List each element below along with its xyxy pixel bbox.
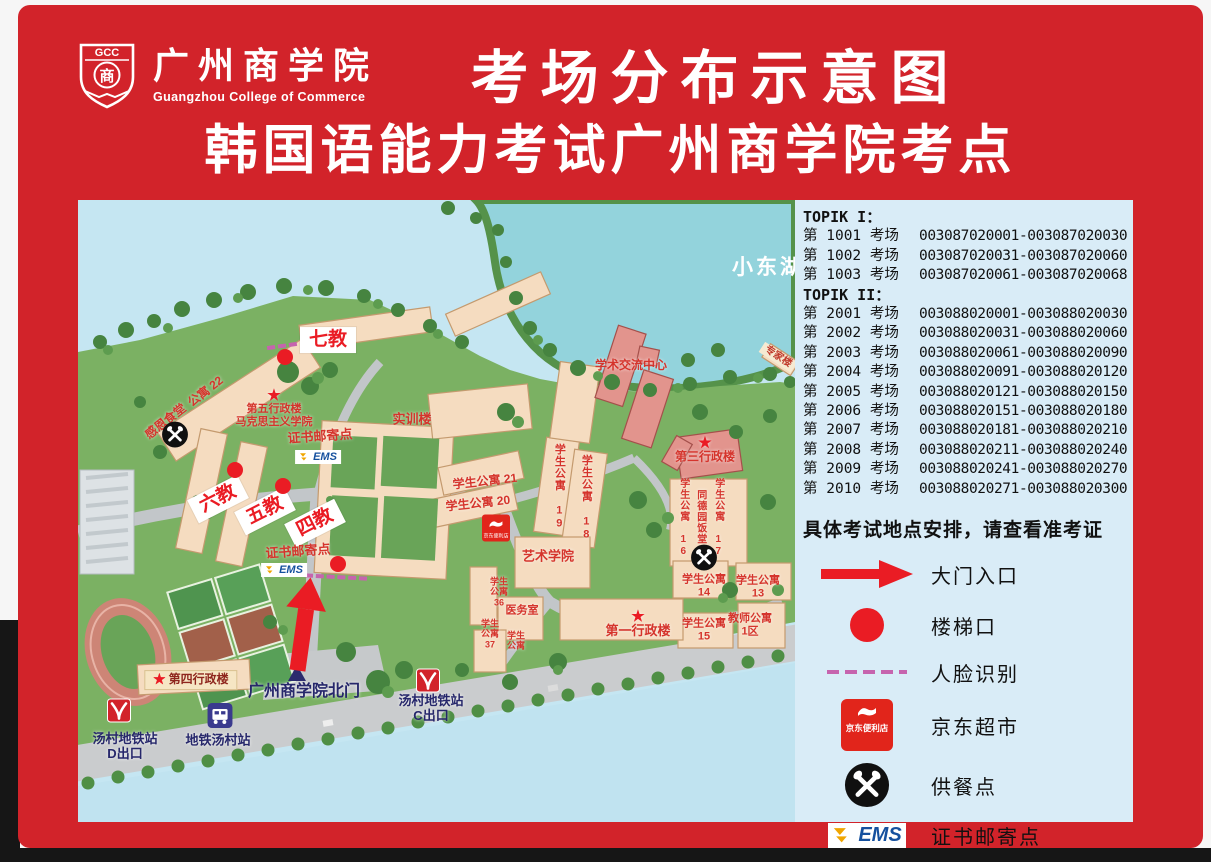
photo-background-edge	[0, 620, 20, 862]
map-label-gongyu-22: 公寓 22	[186, 374, 227, 410]
ticket-range: 003088020211-003088020240	[919, 441, 1127, 460]
legend-label: 供餐点	[931, 771, 997, 800]
ticket-range: 003088020121-003088020150	[919, 383, 1127, 402]
map-label-ditie-tangcunzhan: 地铁汤村站	[185, 734, 250, 749]
ticket-range: 003087020031-003087020060	[919, 247, 1127, 266]
ems-icon: EMS	[261, 563, 307, 577]
map-label-jiaoshi-gongyu-1qu: 教师公寓1区	[728, 612, 772, 637]
ticket-range: 003088020091-003088020120	[919, 363, 1127, 382]
room-row: 第 1001 考场003087020001-003087020030	[803, 227, 1133, 246]
map-label-xuesheng-gongyu-19: 学生公寓 19	[553, 444, 566, 531]
meal-point-icon	[691, 544, 718, 576]
ems-logo-text: EMS	[858, 824, 901, 847]
legend-row: 大门入口	[803, 548, 1133, 600]
campus-map: 七教六教五教四教★第五行政楼马克思主义学院证书邮寄点实训楼证书邮寄点公寓 22感…	[78, 200, 795, 822]
college-shield-icon: GCC 商	[75, 41, 139, 109]
stairway-dot-icon	[803, 608, 931, 642]
map-label-yishu-xueyuan: 艺术学院	[522, 550, 574, 565]
jd-store-icon: 京东便利店	[482, 515, 510, 542]
room-row: 第 2003 考场003088020061-003088020090	[803, 344, 1133, 363]
room-number: 第 1002 考场	[803, 247, 919, 266]
legend-label: 楼梯口	[931, 611, 997, 640]
room-number: 第 2002 考场	[803, 324, 919, 343]
room-row: 第 2010 考场003088020271-003088020300	[803, 480, 1133, 499]
map-label-zhengshu-youjidian-bottom: 证书邮寄点	[265, 542, 331, 561]
poster-title: 考场分布示意图	[308, 43, 1123, 115]
dot-marker	[330, 556, 346, 572]
map-label-disi-xingzhenglou: ★ 第四行政楼	[144, 670, 237, 690]
map-label-xuesheng-gongyu-14: 学生公寓14	[682, 573, 726, 598]
exam-map-poster: GCC 商 广州商学院 Guangzhou College of Commerc…	[18, 5, 1203, 848]
room-number: 第 2009 考场	[803, 460, 919, 479]
room-row: 第 2008 考场003088020211-003088020240	[803, 441, 1133, 460]
meal-point-icon	[803, 762, 931, 808]
map-label-zhuanjialou: 专家楼	[759, 342, 795, 372]
room-row: 第 2002 考场003088020031-003088020060	[803, 324, 1133, 343]
room-number: 第 2007 考场	[803, 421, 919, 440]
map-label-xuesheng-gongyu-15: 学生公寓15	[682, 617, 726, 642]
map-label-diwu-xingzhenglou: ★第五行政楼马克思主义学院	[236, 388, 313, 428]
star-icon: ★	[153, 672, 165, 686]
map-label-xuesheng-gongyu-extra: 学生公寓	[507, 631, 525, 652]
topik-section-header: TOPIK II：	[803, 286, 1133, 305]
map-label-zhengshu-youjidian-top: 证书邮寄点	[287, 427, 353, 446]
room-row: 第 2004 考场003088020091-003088020120	[803, 363, 1133, 382]
room-row: 第 1002 考场003087020031-003087020060	[803, 247, 1133, 266]
map-label-xuesheng-gongyu-36: 学生公寓36	[490, 576, 508, 607]
map-label-xiaodonghu: 小东湖	[732, 256, 795, 280]
map-label-tongdeyuan-fantang: 同德园饭堂	[694, 490, 706, 545]
svg-text:GCC: GCC	[95, 47, 120, 59]
admission-ticket-note: 具体考试地点安排，请查看准考证	[803, 515, 1133, 542]
room-number: 第 2006 考场	[803, 402, 919, 421]
svg-text:商: 商	[99, 67, 114, 85]
room-row: 第 2009 考场003088020241-003088020270	[803, 460, 1133, 479]
room-row: 第 2005 考场003088020121-003088020150	[803, 383, 1133, 402]
star-icon: ★	[236, 388, 313, 403]
legend-row: EMS证书邮寄点	[803, 814, 1133, 856]
map-label-xuesheng-gongyu-37: 学生公寓37	[481, 618, 499, 649]
room-row: 第 2001 考场003088020001-003088020030	[803, 305, 1133, 324]
dot-marker	[277, 349, 293, 365]
map-label-xuesheng-gongyu-20: 学生公寓 20	[445, 494, 511, 514]
room-assignment-list: TOPIK I：第 1001 考场003087020001-0030870200…	[803, 208, 1133, 499]
jd-store-icon: 京东便利店	[803, 699, 931, 751]
bus-station-icon	[207, 703, 233, 734]
room-number: 第 2005 考场	[803, 383, 919, 402]
ticket-range: 003088020061-003088020090	[919, 344, 1127, 363]
ticket-range: 003088020241-003088020270	[919, 460, 1127, 479]
metro-station-icon	[416, 669, 440, 698]
room-number: 第 1003 考场	[803, 266, 919, 285]
entrance-arrow-icon	[803, 560, 931, 588]
dot-marker	[275, 478, 291, 494]
map-label-yiwushi: 医务室	[506, 605, 539, 618]
map-label-xueshu-jiaoliu-zhongxin: 学术交流中心	[595, 359, 667, 373]
star-icon: ★	[605, 609, 670, 624]
map-label-xuesheng-gongyu-13: 学生公寓13	[736, 574, 780, 599]
ticket-range: 003088020181-003088020210	[919, 421, 1127, 440]
jd-store-name: 京东便利店	[841, 723, 893, 733]
star-icon: ★	[675, 436, 735, 451]
poster-subtitle: 韩国语能力考试广州商学院考点	[18, 117, 1203, 185]
ticket-range: 003087020061-003087020068	[919, 266, 1127, 285]
room-number: 第 2003 考场	[803, 344, 919, 363]
info-panel: TOPIK I：第 1001 考场003087020001-0030870200…	[795, 200, 1133, 822]
map-label-tangcun-ditiezhan-c: 汤村地铁站C出口	[398, 694, 463, 724]
room-row: 第 2006 考场003088020151-003088020180	[803, 402, 1133, 421]
ticket-range: 003088020151-003088020180	[919, 402, 1127, 421]
legend-label: 大门入口	[931, 560, 1019, 589]
map-label-xuesheng-gongyu-21: 学生公寓 21	[452, 472, 518, 492]
room-number: 第 1001 考场	[803, 227, 919, 246]
map-label-diyi-xingzhenglou: ★第一行政楼	[605, 609, 670, 639]
meal-point-icon	[162, 421, 189, 453]
room-row: 第 1003 考场003087020061-003087020068	[803, 266, 1133, 285]
ems-icon: EMS	[803, 823, 931, 848]
room-number: 第 2001 考场	[803, 305, 919, 324]
map-overlay: 七教六教五教四教★第五行政楼马克思主义学院证书邮寄点实训楼证书邮寄点公寓 22感…	[78, 200, 795, 822]
metro-station-icon	[107, 699, 131, 728]
ticket-range: 003088020271-003088020300	[919, 480, 1127, 499]
map-label-qijiao: 七教	[300, 327, 356, 353]
room-row: 第 2007 考场003088020181-003088020210	[803, 421, 1133, 440]
ems-logo-text: EMS	[313, 451, 337, 463]
face-id-dash-icon	[803, 670, 931, 674]
entrance-arrow-icon	[278, 575, 331, 674]
ticket-range: 003087020001-003087020030	[919, 227, 1127, 246]
legend-label: 证书邮寄点	[931, 821, 1041, 850]
legend-row: 京东便利店京东超市	[803, 694, 1133, 756]
ticket-range: 003088020001-003088020030	[919, 305, 1127, 324]
legend-row: 人脸识别	[803, 650, 1133, 694]
map-board: 七教六教五教四教★第五行政楼马克思主义学院证书邮寄点实训楼证书邮寄点公寓 22感…	[78, 200, 1133, 822]
map-label-disan-xingzhenglou: ★第三行政楼	[675, 436, 735, 465]
map-label-tangcun-ditiezhan-d: 汤村地铁站D出口	[92, 732, 157, 762]
legend-label: 人脸识别	[931, 658, 1019, 687]
room-number: 第 2008 考场	[803, 441, 919, 460]
map-label-xuesheng-gongyu-16: 学生公寓 16	[677, 478, 689, 558]
topik-section-header: TOPIK I：	[803, 208, 1133, 227]
map-label-xuesheng-gongyu-18: 学生公寓 18	[580, 455, 593, 542]
map-label-shixunlou: 实训楼	[392, 413, 431, 428]
dot-marker	[227, 462, 243, 478]
legend-row: 楼梯口	[803, 600, 1133, 650]
ems-icon: EMS	[295, 450, 341, 464]
ticket-range: 003088020031-003088020060	[919, 324, 1127, 343]
room-number: 第 2004 考场	[803, 363, 919, 382]
map-legend: 大门入口楼梯口人脸识别京东便利店京东超市供餐点EMS证书邮寄点	[803, 548, 1133, 856]
map-label-beimen: 广州商学院北门	[248, 683, 360, 701]
jd-store-name: 京东便利店	[483, 534, 509, 540]
room-number: 第 2010 考场	[803, 480, 919, 499]
legend-row: 供餐点	[803, 756, 1133, 814]
legend-label: 京东超市	[931, 711, 1019, 740]
